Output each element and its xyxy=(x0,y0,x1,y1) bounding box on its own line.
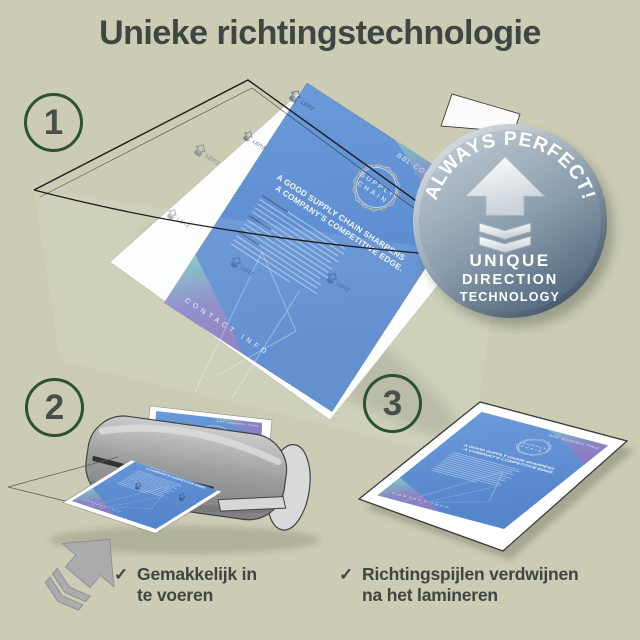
step-1-circle: 1 xyxy=(24,93,83,152)
badge-line1: UNIQUE xyxy=(469,251,550,270)
check-icon: ✓ xyxy=(339,565,353,586)
step-2-number: 2 xyxy=(45,388,64,428)
illustration-canvas: BBL CONSULTING SUPPLY CHAIN A GOOD SUPPL… xyxy=(0,0,640,640)
step-3-circle: 3 xyxy=(363,374,422,433)
badge-line2: DIRECTION xyxy=(462,272,558,288)
benefit-text: Richtingspijlen verdwijnen na het lamine… xyxy=(362,564,579,607)
check-icon: ✓ xyxy=(114,565,128,586)
benefit-easy-feed: ✓ Gemakkelijk in te voeren xyxy=(114,564,257,607)
step-1-number: 1 xyxy=(44,103,63,143)
benefit-text: Gemakkelijk in te voeren xyxy=(137,564,257,607)
leitz-watermark: LEITZ xyxy=(192,142,223,168)
step-3-number: 3 xyxy=(383,384,402,424)
product-infographic: Unieke richtingstechnologie xyxy=(0,0,640,640)
badge-line3: TECHNOLOGY xyxy=(460,290,560,304)
benefit-arrows-disappear: ✓ Richtingspijlen verdwijnen na het lami… xyxy=(339,564,579,607)
step-2-circle: 2 xyxy=(25,378,84,437)
